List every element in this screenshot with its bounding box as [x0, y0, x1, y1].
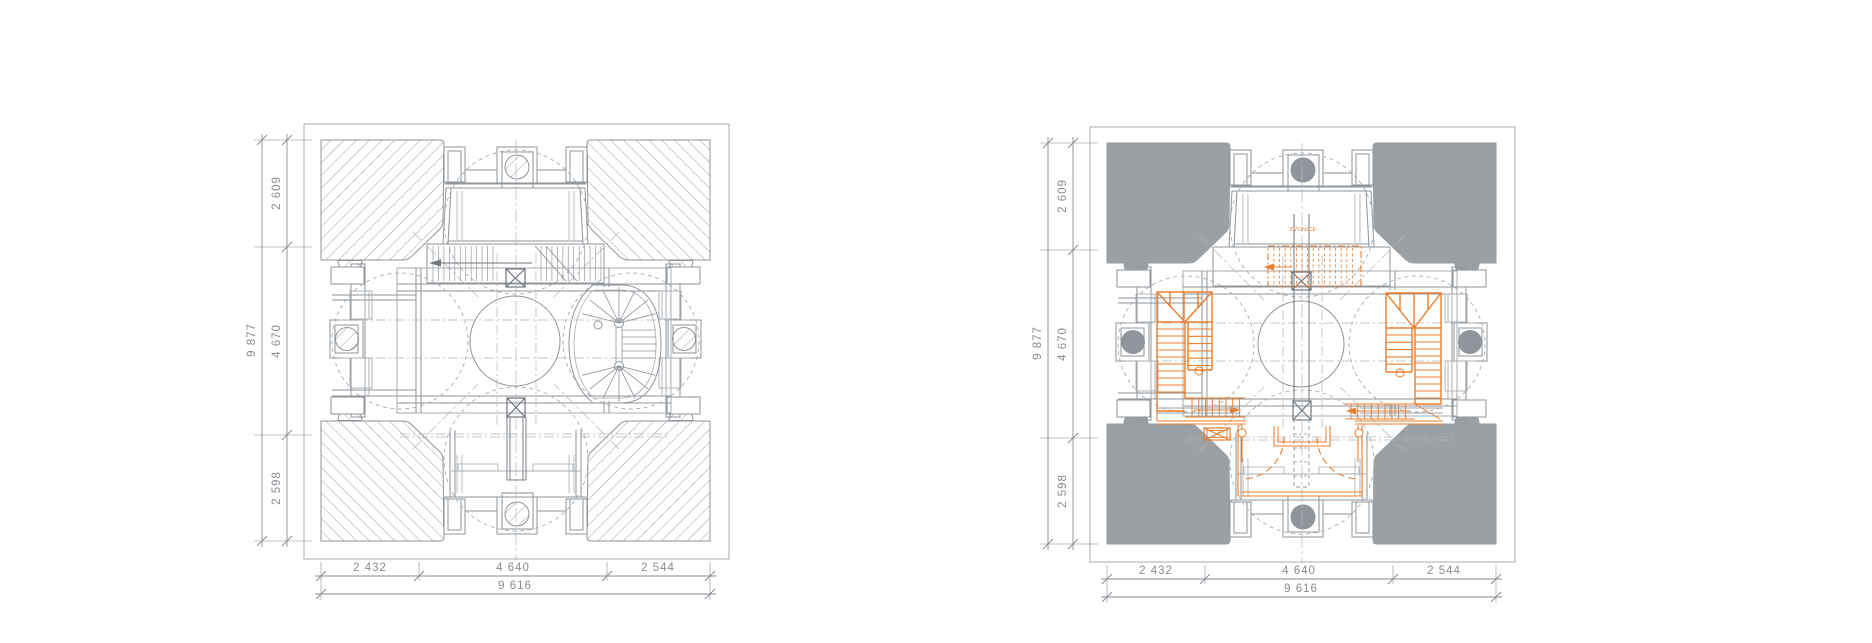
svg-text:2 609: 2 609: [1057, 179, 1069, 213]
svg-text:9 616: 9 616: [1284, 583, 1318, 595]
svg-text:2 598: 2 598: [271, 471, 283, 505]
svg-text:4 670: 4 670: [1057, 327, 1069, 361]
svg-text:9 616: 9 616: [498, 580, 532, 592]
svg-text:2 544: 2 544: [1427, 565, 1461, 577]
svg-text:4 640: 4 640: [1282, 565, 1316, 577]
svg-text:ZVONICE: ZVONICE: [1289, 227, 1316, 233]
svg-text:2 609: 2 609: [271, 176, 283, 210]
svg-text:9 877: 9 877: [246, 323, 258, 357]
svg-text:2 598: 2 598: [1057, 474, 1069, 508]
svg-text:4 670: 4 670: [271, 324, 283, 358]
svg-text:2 544: 2 544: [641, 562, 675, 574]
svg-text:2 432: 2 432: [353, 562, 387, 574]
svg-text:2 432: 2 432: [1139, 565, 1173, 577]
svg-text:9 877: 9 877: [1032, 326, 1044, 360]
svg-text:4 640: 4 640: [496, 562, 530, 574]
